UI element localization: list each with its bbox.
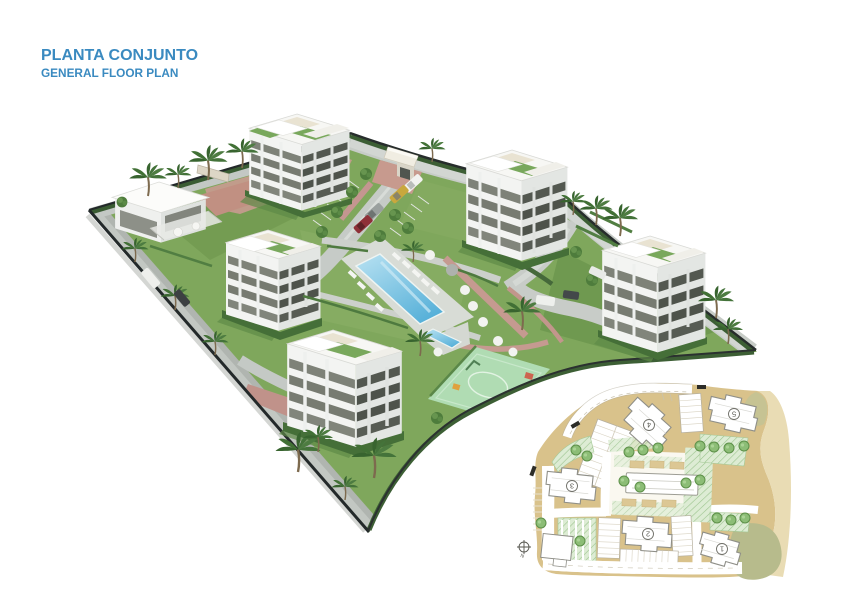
svg-text:3: 3 (570, 481, 574, 490)
svg-text:1: 1 (720, 544, 724, 553)
svg-text:2: 2 (646, 529, 650, 538)
svg-text:4: 4 (647, 420, 651, 429)
svg-text:5: 5 (732, 409, 736, 418)
